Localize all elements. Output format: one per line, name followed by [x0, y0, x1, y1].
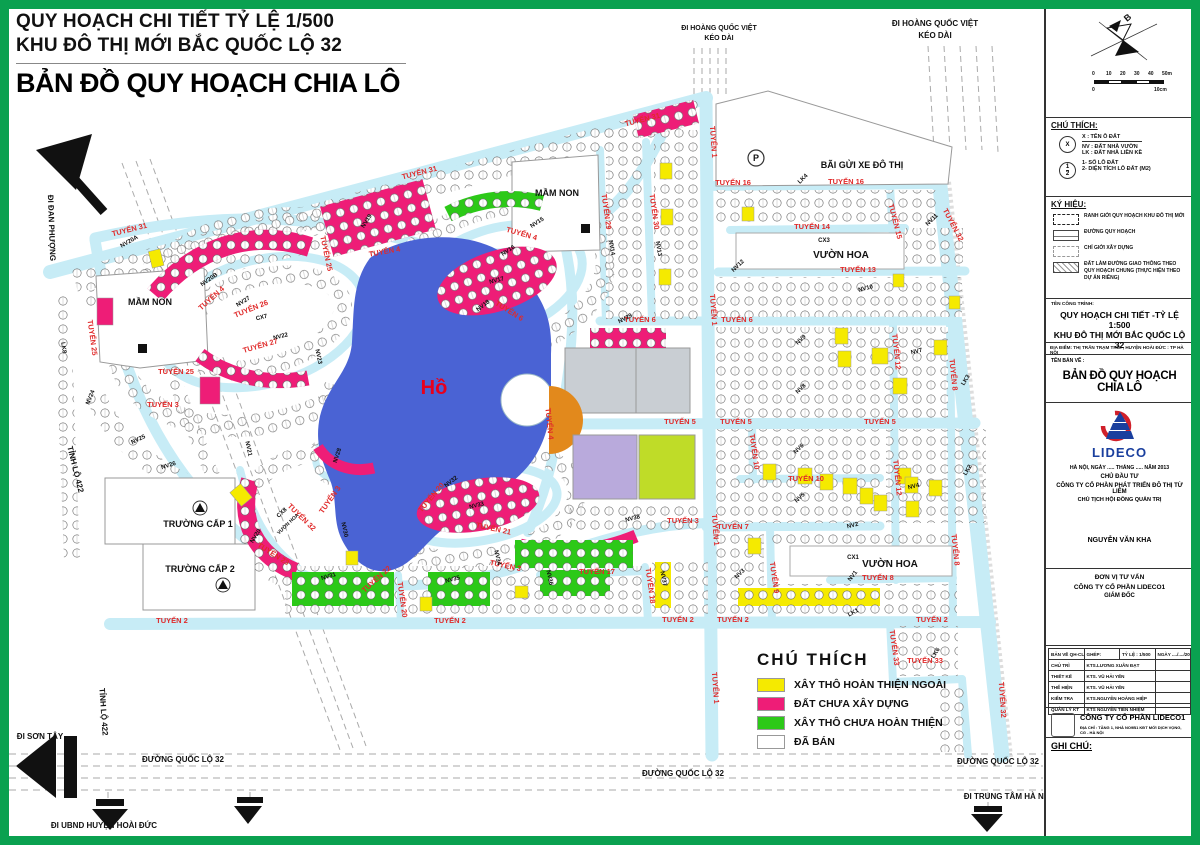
edge-label: ĐI ĐAN PHƯỢNG [46, 195, 57, 262]
legend-item: XÂY THÔ HOÀN THIỆN NGOÀI [757, 678, 997, 692]
legend-item: ĐẤT CHƯA XÂY DỰNG [757, 697, 997, 711]
legend-swatch [757, 735, 785, 749]
road-label: TUYẾN 10 [788, 473, 824, 483]
scale-tick: 10 [1106, 71, 1112, 77]
ky-hieu-label: CHỈ GIỚI XÂY DỰNG [1084, 245, 1133, 252]
table-person-cell: KTS.NGUYỄN HOÀNG HIỆP [1084, 693, 1155, 704]
road-label: TUYẾN 2 [156, 615, 188, 625]
lake-label: Hồ [421, 377, 448, 399]
legend-label: XÂY THÔ CHƯA HOÀN THIỆN [794, 717, 943, 729]
company-address: ĐỊA CHỈ : TẦNG 1, NHÀ NO9B1 KĐT MỚI DỊCH… [1080, 725, 1188, 735]
compass-icon: B [1051, 12, 1187, 68]
road-label: TUYẾN 2 [434, 615, 466, 625]
edge-label: ĐI UBND HUYỆN HOÀI ĐỨC [51, 821, 157, 830]
arrow-son-tay-bar [64, 736, 77, 798]
sidebar-notes: GHI CHÚ: [1046, 738, 1193, 836]
master-plan-map: TUYẾN 31TUYẾN 31TUYẾN 31TUYẾN 25TUYẾN 25… [0, 0, 1200, 845]
map-legend: CHÚ THÍCH XÂY THÔ HOÀN THIỆN NGOÀIĐẤT CH… [757, 650, 997, 754]
legend-label: XÂY THÔ HOÀN THIỆN NGOÀI [794, 679, 946, 691]
table-role-cell: CHỦ TRÌ [1049, 660, 1085, 671]
edge-label: ĐI HOÀNG QUỐC VIỆT [681, 22, 757, 32]
build-line-symbol [1053, 246, 1079, 257]
edge-label: KÉO DÀI [918, 31, 951, 40]
edge-label: ĐƯỜNG QUỐC LỘ 32 [957, 756, 1039, 766]
table-header-cell: BẢN VẼ QH-CL [1049, 649, 1085, 660]
title-divider [16, 63, 406, 64]
sidebar-ky-hieu: KÝ HIỆU: RANH GIỚI QUY HOẠCH KHU ĐÔ THỊ … [1046, 197, 1193, 299]
area-label: P [753, 153, 759, 163]
road-label: TUYẾN 5 [664, 416, 696, 426]
scale-bar: 01020304050m 0 10cm [1068, 71, 1178, 101]
legend-label: ĐÃ BÁN [794, 736, 835, 748]
page-title: BẢN ĐỒ QUY HOẠCH CHIA LÔ [16, 68, 406, 99]
sidebar-company-box: CÔNG TY CỔ PHẦN LIDECO1 ĐỊA CHỈ : TẦNG 1… [1046, 708, 1193, 738]
road-label: TUYẾN 3 [667, 515, 699, 525]
director-title: GIÁM ĐỐC [1051, 593, 1188, 599]
road-label: TUYẾN 6 [721, 314, 753, 324]
edge-label: ĐƯỜNG QUỐC LỘ 32 [642, 768, 724, 778]
sidebar-investor: LIDECO HÀ NỘI, NGÀY ..... THÁNG ..... NĂ… [1046, 403, 1193, 569]
table-empty-cell [1155, 682, 1191, 693]
sidebar-drawing-name: TÊN BẢN VẼ : BẢN ĐỒ QUY HOẠCH CHIA LÔ [1046, 355, 1193, 403]
edge-label: ĐI SƠN TÂY [17, 732, 64, 741]
drawing-info-table: BẢN VẼ QH-CLGHÉP:TỶ LỆ : 1/500NGÀY ..../… [1048, 648, 1191, 715]
edge-label: KÉO DÀI [704, 33, 733, 42]
ky-hieu-label: ĐẤT LÀM ĐƯỜNG GIAO THÔNG THEO QUY HOẠCH … [1084, 261, 1188, 281]
road-label: TUYẾN 13 [840, 264, 876, 274]
table-role-cell: THIẾT KẾ [1049, 671, 1085, 682]
road-label: TUYẾN 14 [794, 221, 831, 231]
scale-sub-left: 0 [1092, 87, 1095, 93]
table-person-cell: KTS. VŨ HẢI YẾN [1084, 682, 1155, 693]
table-row: KIỂM TRAKTS.NGUYỄN HOÀNG HIỆP [1049, 693, 1191, 704]
area-label: CX3 [818, 238, 830, 244]
chu-thich-line: 2- DIỆN TÍCH LÔ ĐẤT (M2) [1082, 166, 1151, 172]
legend-item: XÂY THÔ CHƯA HOÀN THIỆN [757, 716, 997, 730]
road-label: TUYẾN 8 [862, 572, 894, 582]
table-row: THỂ HIỆNKTS. VŨ HẢI YẾN [1049, 682, 1191, 693]
lideco-logo-icon [1093, 410, 1147, 444]
area-label: BÃI GỬI XE ĐÔ THỊ [821, 159, 903, 170]
chu-thich-title: CHÚ THÍCH: [1051, 121, 1188, 130]
area-label: VƯỜN HOA [862, 557, 918, 570]
legend-rows: XÂY THÔ HOÀN THIỆN NGOÀIĐẤT CHƯA XÂY DỰN… [757, 678, 997, 749]
investor-label: CHỦ ĐẦU TƯ [1051, 474, 1188, 480]
arrow-ha-noi [971, 814, 1003, 832]
road-label: TUYẾN 16 [715, 177, 751, 187]
sidebar-compass-scale: B 01020304050m 0 10cm [1046, 9, 1193, 118]
road-label: TUYẾN 5 [720, 416, 752, 426]
scale-tick: 0 [1092, 71, 1095, 77]
consultant-label: ĐƠN VỊ TƯ VẤN [1051, 574, 1188, 581]
edge-label: ĐI TRUNG TÂM HÀ NỘI [964, 792, 1052, 801]
table-role-cell: THỂ HIỆN [1049, 682, 1085, 693]
chu-thich-line: X : TÊN Ô ĐẤT [1082, 134, 1142, 142]
road-label: TUYẾN 3 [147, 399, 179, 409]
scale-tick: 30 [1134, 71, 1140, 77]
table-empty-cell [1155, 671, 1191, 682]
table-header-cell: NGÀY ..../..../2013 [1155, 649, 1191, 660]
sidebar: B 01020304050m 0 10cm CHÚ THÍCH: X X : T… [1044, 9, 1193, 836]
lot-number-symbol: 1 2 [1059, 162, 1076, 179]
chu-thich-line: LK : ĐẤT NHÀ LIỀN KỀ [1082, 150, 1142, 156]
table-row: CHỦ TRÌKTS.LƯƠNG XUÂN ĐẠT [1049, 660, 1191, 671]
consultant-name: CÔNG TY CỔ PHẦN LIDECO1 [1051, 584, 1188, 591]
area-label: MẦM NON [535, 188, 579, 198]
title-line-1: QUY HOẠCH CHI TIẾT TỶ LỆ 1/500 [16, 10, 406, 34]
lot-code-symbol: X [1059, 136, 1076, 153]
arrow-dan-phuong [36, 134, 92, 190]
edge-label: ĐI HOÀNG QUỐC VIỆT [892, 18, 978, 28]
scale-tick: 20 [1120, 71, 1126, 77]
legend-swatch [757, 697, 785, 711]
road-label: TUYẾN 7 [717, 521, 749, 531]
company-stamp-box [1051, 713, 1075, 737]
title-block: QUY HOẠCH CHI TIẾT TỶ LỆ 1/500 KHU ĐÔ TH… [16, 10, 406, 99]
table-row: THIẾT KẾKTS. VŨ HẢI YẾN [1049, 671, 1191, 682]
table-person-cell: KTS.LƯƠNG XUÂN ĐẠT [1084, 660, 1155, 671]
edge-label: ĐƯỜNG QUỐC LỘ 32 [142, 754, 224, 764]
title-line-2: KHU ĐÔ THỊ MỚI BẮC QUỐC LỘ 32 [16, 34, 406, 58]
sidebar-location: ĐỊA ĐIỂM: THỊ TRẤN TRẠM TRÔI , HUYỆN HOÀ… [1046, 343, 1193, 355]
legend-title: CHÚ THÍCH [757, 650, 997, 670]
table-header-cell: TỶ LỆ : 1/500 [1120, 649, 1156, 660]
ky-hieu-title: KÝ HIỆU: [1051, 200, 1188, 209]
drawing-name-label: TÊN BẢN VẼ : [1051, 358, 1188, 364]
table-empty-cell [1155, 693, 1191, 704]
chairman-title: CHỦ TỊCH HỘI ĐỒNG QUẢN TRỊ [1051, 497, 1188, 503]
legend-swatch [757, 678, 785, 692]
sidebar-chu-thich: CHÚ THÍCH: X X : TÊN Ô ĐẤT NV : ĐẤT NHÀ … [1046, 118, 1193, 197]
road-label: TUYẾN 2 [717, 614, 749, 624]
area-label: MẦM NON [128, 297, 172, 307]
chairman-name: NGUYỄN VĂN KHA [1051, 537, 1188, 544]
investor-name: CÔNG TY CỔ PHẦN PHÁT TRIỂN ĐÔ THỊ TỪ LIÊ… [1051, 483, 1188, 495]
legend-label: ĐẤT CHƯA XÂY DỰNG [794, 698, 909, 710]
scale-tick: 40 [1148, 71, 1154, 77]
table-header-cell: GHÉP: [1084, 649, 1120, 660]
project-title-1: QUY HOẠCH CHI TIẾT -TỶ LỆ 1:500 [1051, 310, 1188, 330]
lideco-logo-text: LIDECO [1092, 445, 1147, 460]
project-name-label: TÊN CÔNG TRÌNH: [1051, 302, 1188, 307]
area-label: VƯỜN HOA [813, 248, 869, 261]
drawing-title: BẢN ĐỒ QUY HOẠCH CHIA LÔ [1051, 370, 1188, 394]
road-label: TUYẾN 17 [579, 566, 615, 576]
notes-label: GHI CHÚ: [1051, 741, 1188, 751]
road-label: TUYẾN 5 [864, 416, 896, 426]
date-line: HÀ NỘI, NGÀY ..... THÁNG ..... NĂM 2013 [1051, 465, 1188, 471]
planning-drawing: TUYẾN 31TUYẾN 31TUYẾN 31TUYẾN 25TUYẾN 25… [0, 0, 1200, 845]
sidebar-title-table: BẢN VẼ QH-CLGHÉP:TỶ LỆ : 1/500NGÀY ..../… [1046, 646, 1193, 708]
edge-label: TỈNH LỘ 422 [97, 688, 109, 737]
transport-land-symbol [1053, 262, 1079, 273]
ky-hieu-label: ĐƯỜNG QUY HOẠCH [1084, 229, 1135, 236]
scale-tick: 50m [1162, 71, 1172, 77]
area-label: TRƯỜNG CẤP 2 [165, 563, 235, 574]
legend-item: ĐÃ BÁN [757, 735, 997, 749]
scale-sub-right: 10cm [1154, 87, 1167, 93]
lideco-logo: LIDECO [1051, 410, 1188, 460]
area-label: TRƯỜNG CẤP 1 [163, 518, 233, 529]
legend-swatch [757, 716, 785, 730]
compass-north-label: B [1122, 12, 1134, 24]
road-label: TUYẾN 16 [828, 176, 864, 186]
table-role-cell: KIỂM TRA [1049, 693, 1085, 704]
sidebar-consultant: ĐƠN VỊ TƯ VẤN CÔNG TY CỔ PHẦN LIDECO1 GI… [1046, 569, 1193, 646]
table-empty-cell [1155, 660, 1191, 671]
location-text: ĐỊA ĐIỂM: THỊ TRẤN TRẠM TRÔI , HUYỆN HOÀ… [1050, 345, 1189, 355]
company-name: CÔNG TY CỔ PHẦN LIDECO1 [1080, 713, 1188, 722]
boundary-symbol [1053, 214, 1079, 225]
table-person-cell: KTS. VŨ HẢI YẾN [1084, 671, 1155, 682]
lake-label: Hồ [421, 377, 448, 399]
road-label: TUYẾN 2 [916, 614, 948, 624]
sidebar-project-name: TÊN CÔNG TRÌNH: QUY HOẠCH CHI TIẾT -TỶ L… [1046, 299, 1193, 343]
ky-hieu-label: RANH GIỚI QUY HOẠCH KHU ĐÔ THỊ MỚI [1084, 213, 1184, 220]
lot-label: CX1 [847, 555, 859, 561]
road-label: TUYẾN 25 [158, 366, 194, 376]
road-label: TUYẾN 2 [662, 614, 694, 624]
road-symbol [1053, 230, 1079, 241]
